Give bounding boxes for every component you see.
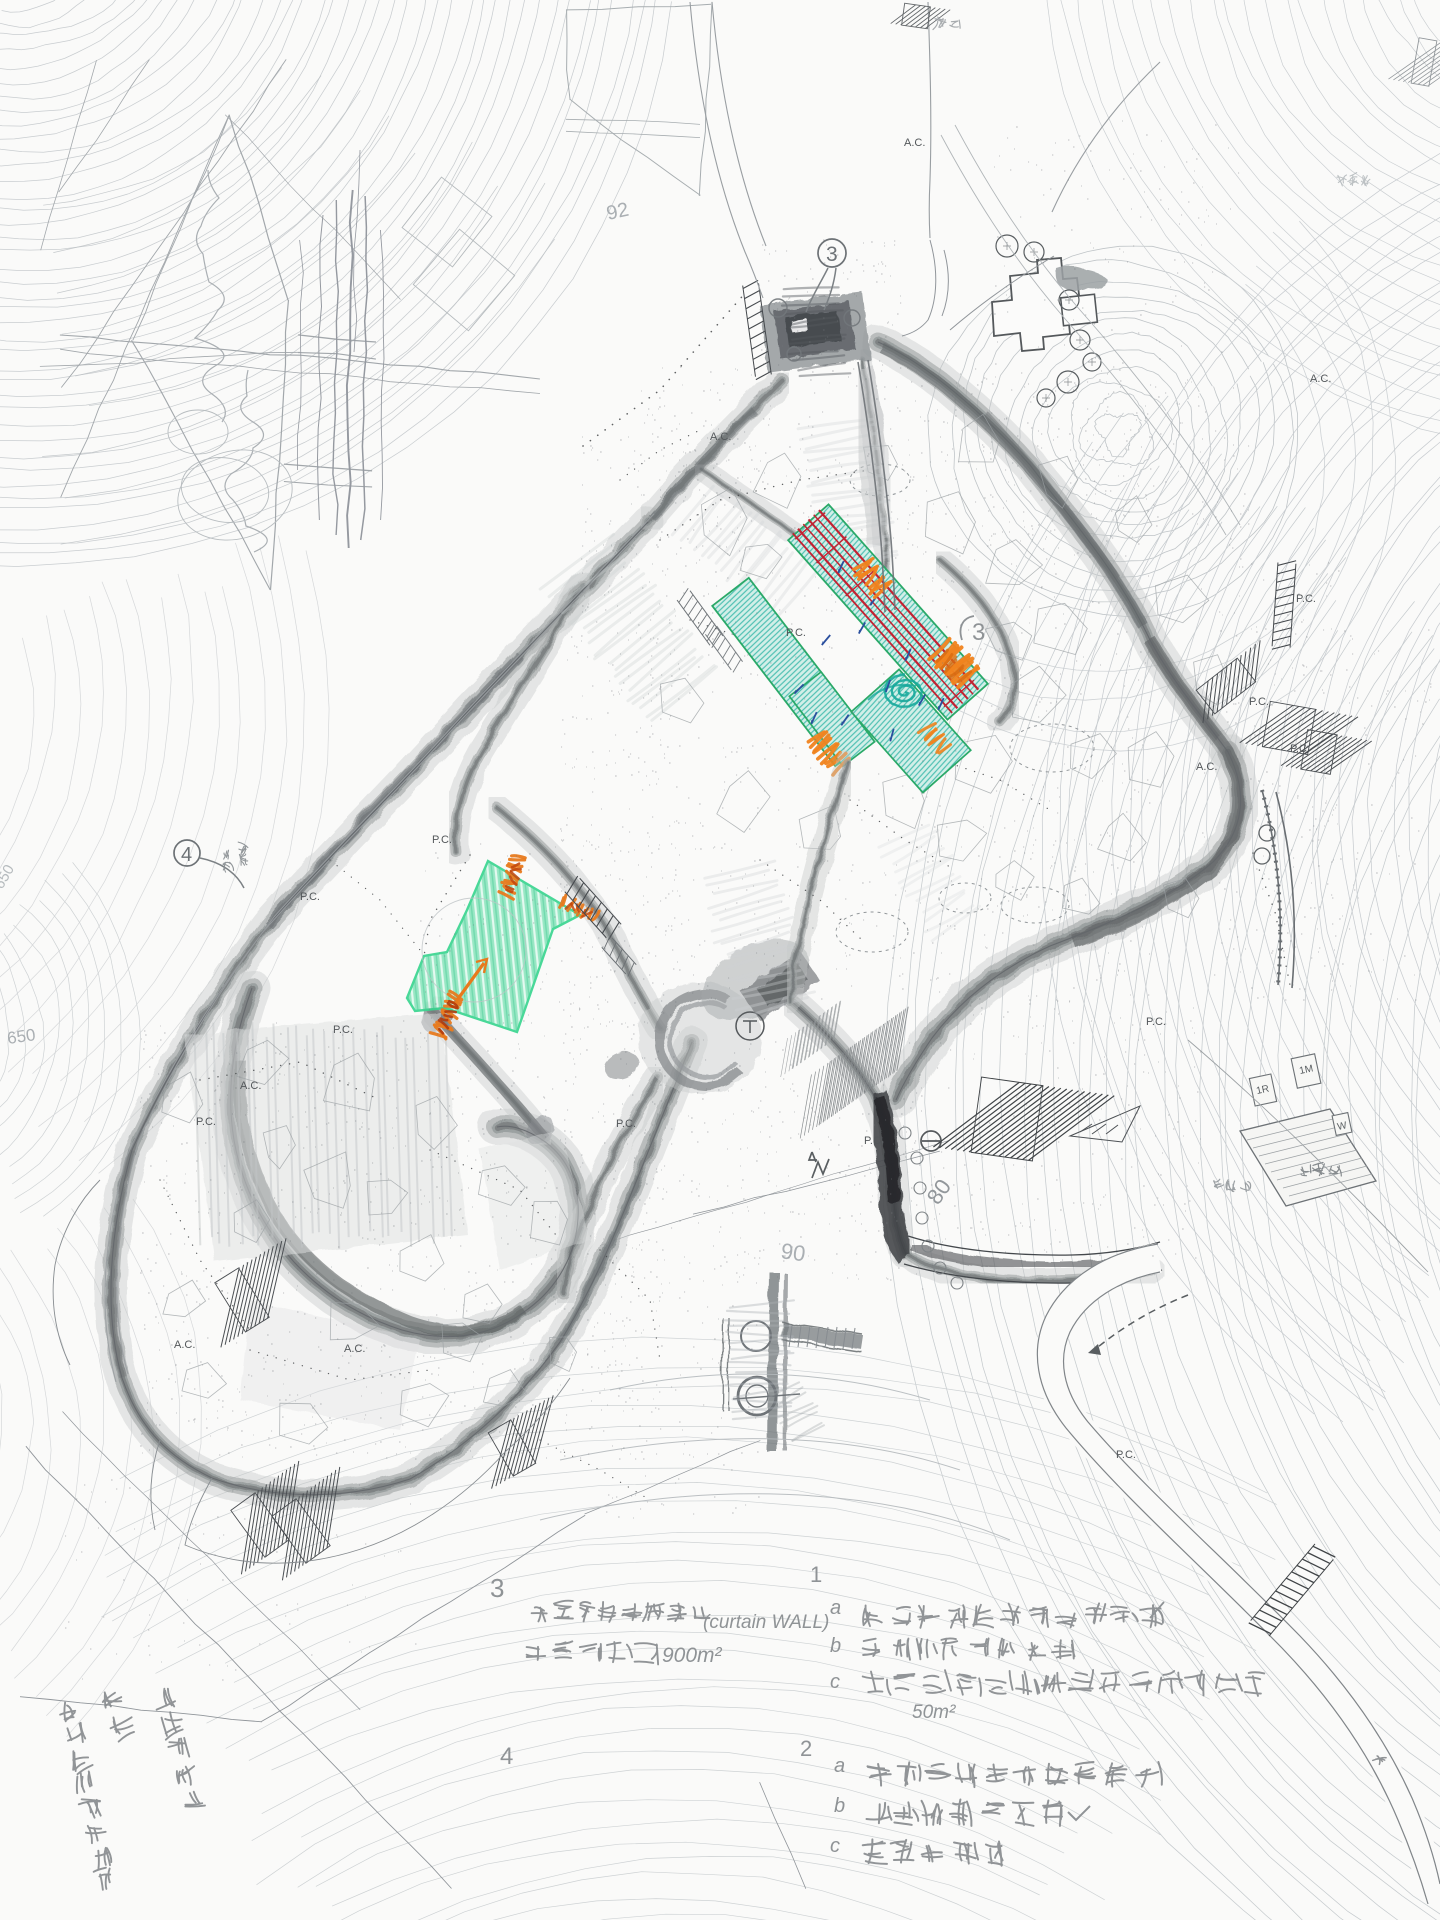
svg-text:3: 3 [972,619,985,646]
svg-text:4: 4 [181,844,192,866]
svg-text:P.C.: P.C. [864,1135,884,1147]
svg-text:P.C.: P.C. [300,891,320,903]
svg-text:3: 3 [826,243,838,266]
svg-text:P.C.: P.C. [196,1116,216,1128]
svg-text:4: 4 [500,1743,513,1770]
svg-text:a: a [830,1597,841,1619]
svg-text:92: 92 [604,199,630,225]
svg-text:3: 3 [490,1573,504,1603]
svg-text:b: b [830,1635,841,1657]
svg-text:c: c [830,1835,840,1857]
svg-text:a: a [834,1755,845,1777]
svg-text:A.C.: A.C. [1310,373,1331,385]
svg-text:c: c [830,1671,840,1693]
svg-text:50m²: 50m² [912,1702,956,1723]
svg-text:650: 650 [6,1025,37,1048]
svg-text:P.C.: P.C. [1296,593,1316,605]
svg-text:P.C.: P.C. [1116,1449,1136,1461]
svg-text:A.C.: A.C. [1196,761,1217,773]
svg-text:2: 2 [800,1736,812,1761]
svg-text:A.C.: A.C. [904,137,925,149]
svg-text:A.C.: A.C. [710,431,731,443]
svg-text:900m²: 900m² [662,1644,723,1667]
svg-text:A.C.: A.C. [240,1080,261,1092]
svg-text:(curtain WALL): (curtain WALL) [703,1612,829,1633]
svg-text:P.C.: P.C. [1249,696,1269,708]
svg-text:P.C.: P.C. [1290,743,1310,755]
svg-text:P.C.: P.C. [432,834,452,846]
svg-text:1: 1 [810,1562,822,1587]
svg-text:b: b [834,1795,845,1817]
svg-text:P.C.: P.C. [333,1024,353,1036]
svg-text:A.C.: A.C. [174,1339,195,1351]
svg-text:90: 90 [779,1238,807,1266]
svg-text:P.C.: P.C. [1146,1016,1166,1028]
svg-text:P.C.: P.C. [786,627,806,639]
svg-text:P.C.: P.C. [616,1118,636,1130]
